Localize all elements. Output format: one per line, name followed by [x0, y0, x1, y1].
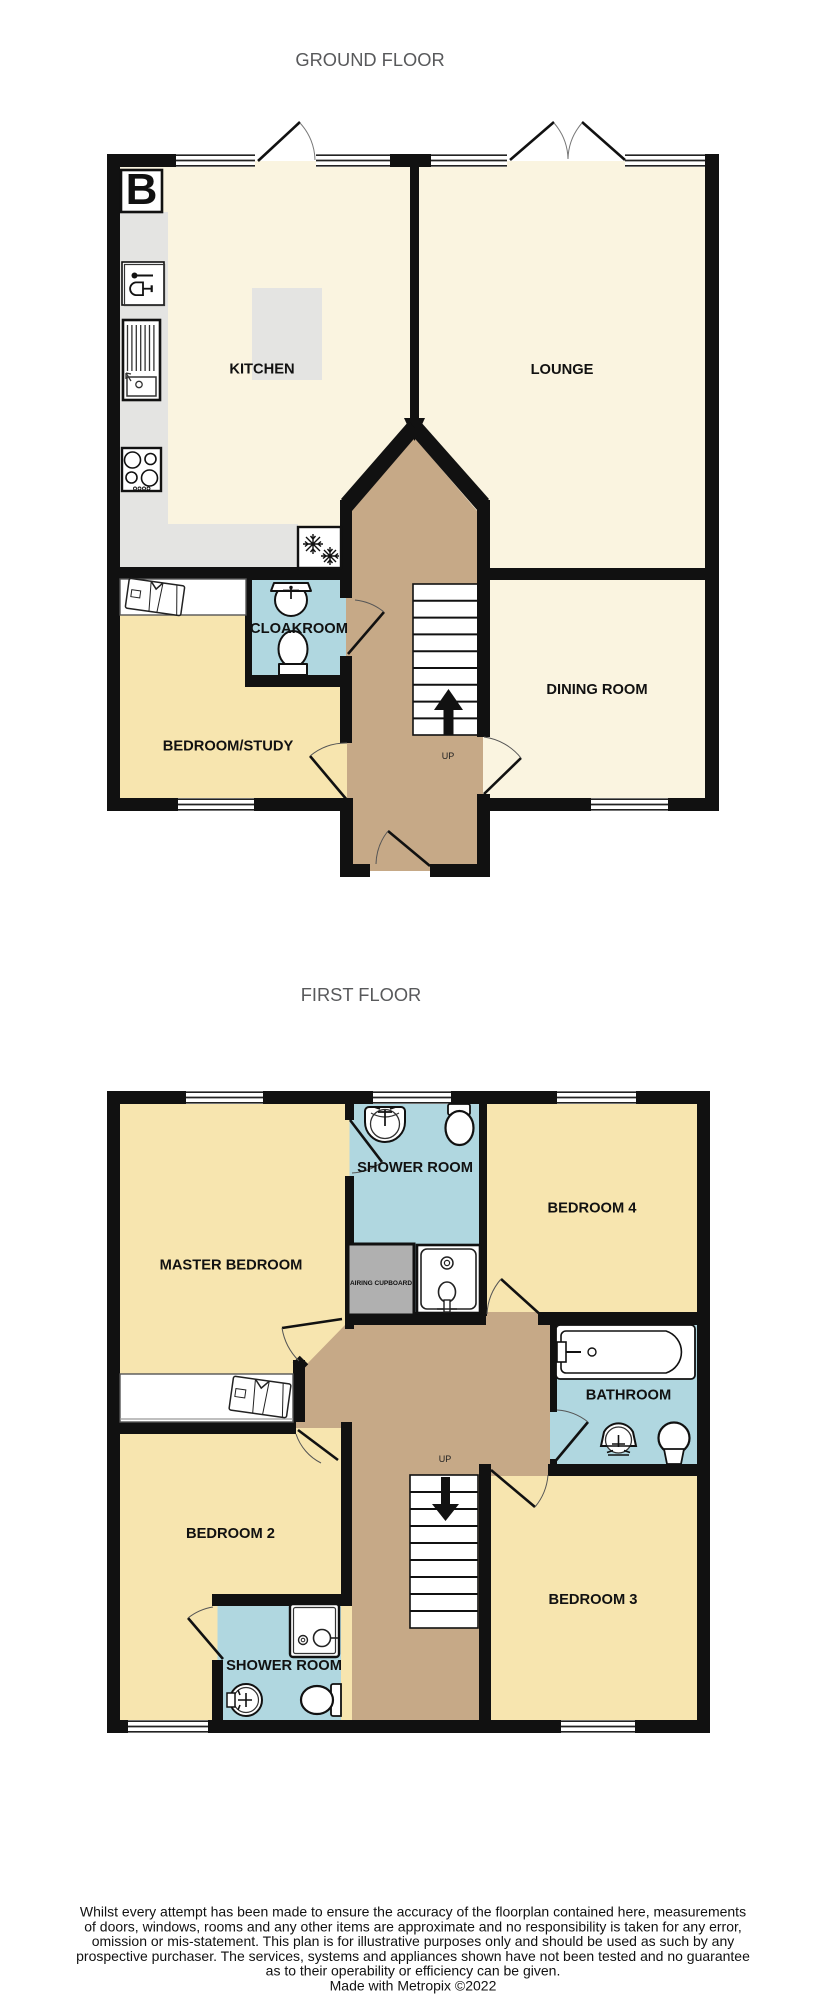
svg-text:SHOWER ROOM: SHOWER ROOM — [226, 1658, 342, 1674]
svg-text:BEDROOM 2: BEDROOM 2 — [186, 1526, 275, 1542]
svg-text:GROUND FLOOR: GROUND FLOOR — [295, 49, 444, 70]
svg-text:SHOWER ROOM: SHOWER ROOM — [357, 1160, 473, 1176]
svg-text:CLOAKROOM: CLOAKROOM — [250, 621, 348, 637]
svg-text:MASTER BEDROOM: MASTER BEDROOM — [160, 1258, 303, 1274]
svg-text:BATHROOM: BATHROOM — [586, 1388, 671, 1404]
svg-text:AIRING CUPBOARD: AIRING CUPBOARD — [350, 1280, 412, 1287]
svg-text:as to their operability or eff: as to their operability or efficiency ca… — [266, 1963, 561, 1979]
svg-text:LOUNGE: LOUNGE — [531, 362, 594, 378]
svg-text:Whilst every attempt has been: Whilst every attempt has been made to en… — [80, 1904, 746, 1920]
svg-text:DINING ROOM: DINING ROOM — [546, 682, 647, 698]
svg-text:BEDROOM/STUDY: BEDROOM/STUDY — [163, 739, 294, 755]
svg-text:KITCHEN: KITCHEN — [229, 362, 294, 378]
svg-text:omission or mis-statement. Thi: omission or mis-statement. This plan is … — [92, 1933, 735, 1949]
svg-text:of doors, windows, rooms and a: of doors, windows, rooms and any other i… — [84, 1918, 742, 1934]
svg-text:UP: UP — [439, 1454, 452, 1464]
svg-text:BEDROOM 3: BEDROOM 3 — [549, 1592, 638, 1608]
svg-text:FIRST FLOOR: FIRST FLOOR — [301, 984, 422, 1005]
svg-text:B: B — [126, 165, 158, 214]
svg-text:Made with Metropix ©2022: Made with Metropix ©2022 — [330, 1978, 497, 1994]
svg-text:prospective purchaser. The ser: prospective purchaser. The services, sys… — [76, 1948, 750, 1964]
svg-text:BEDROOM 4: BEDROOM 4 — [548, 1201, 638, 1217]
svg-text:UP: UP — [442, 751, 455, 761]
